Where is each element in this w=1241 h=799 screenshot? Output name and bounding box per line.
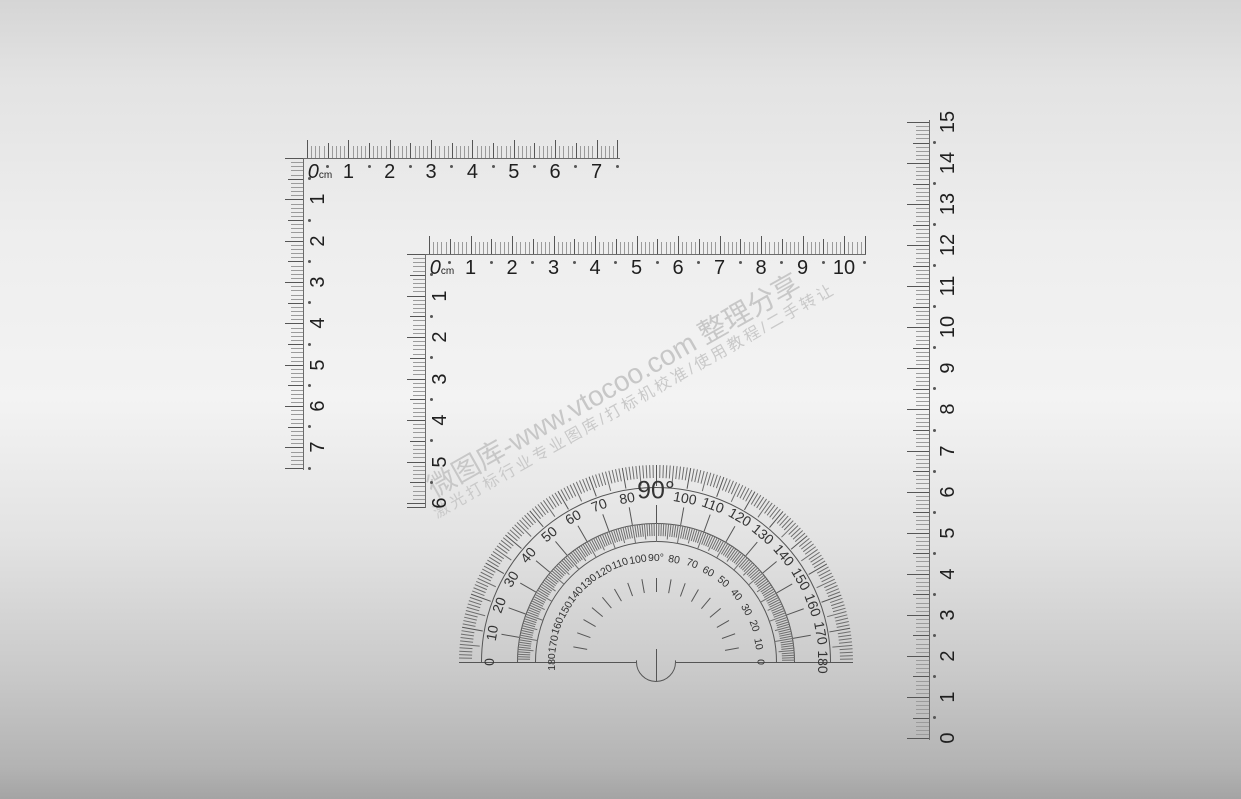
protractor-outer-number: 180 [816,650,830,673]
protractor-degree-tick [832,645,852,648]
protractor: 0102030405060708090°10011012013014015016… [0,0,1241,799]
protractor-inner-number: 80 [667,553,680,565]
protractor-degree-tick [459,647,472,649]
protractor-inner-number: 100 [628,553,647,566]
protractor-degree-tick [460,640,473,642]
protractor-inner-tick [517,659,530,660]
protractor-degree-tick [840,659,853,660]
protractor-degree-tick [838,631,851,634]
protractor-outer-number: 100 [672,489,697,507]
protractor-inner-tick [654,523,655,536]
protractor-inner-tick [656,523,657,542]
protractor-inner-number: 10 [752,637,764,650]
protractor-outer-number: 90° [637,479,675,504]
protractor-degree-tick [625,467,628,480]
protractor-degree-tick [461,630,474,633]
protractor-degree-tick [840,652,853,654]
protractor-minor-dash [656,578,657,592]
protractor-degree-tick [460,637,473,640]
protractor-degree-tick [678,466,681,479]
protractor-degree-tick [682,467,685,480]
protractor-degree-tick [460,644,480,647]
protractor-degree-tick [839,641,852,643]
protractor-degree-tick [459,651,472,653]
protractor-outer-number: 10 [483,624,499,642]
protractor-center-line [656,649,657,681]
protractor-degree-tick [675,466,677,479]
protractor-degree-tick [840,655,853,656]
protractor-inner-number: 90° [648,553,664,564]
protractor-inner-number: 0 [755,659,766,665]
protractor-degree-tick [461,634,474,637]
protractor-inner-number: 170 [547,634,560,653]
protractor-degree-tick [459,658,472,659]
protractor-degree-tick [840,648,853,650]
protractor-outer-number: 170 [812,620,830,645]
protractor-degree-tick [632,466,635,479]
protractor-outer-number: 0 [482,658,496,666]
protractor-radial-line [687,468,692,489]
protractor-degree-tick [838,635,851,638]
protractor-degree-tick [839,638,852,641]
protractor-degree-tick [459,654,472,655]
protractor-outer-number: 80 [618,489,636,505]
protractor-inner-number: 180 [547,653,558,671]
canvas: 微图库-www.vtocoo.com 整理分享 激光打标行业专业图库/打标机校准… [0,0,1241,799]
protractor-degree-tick [629,467,632,480]
